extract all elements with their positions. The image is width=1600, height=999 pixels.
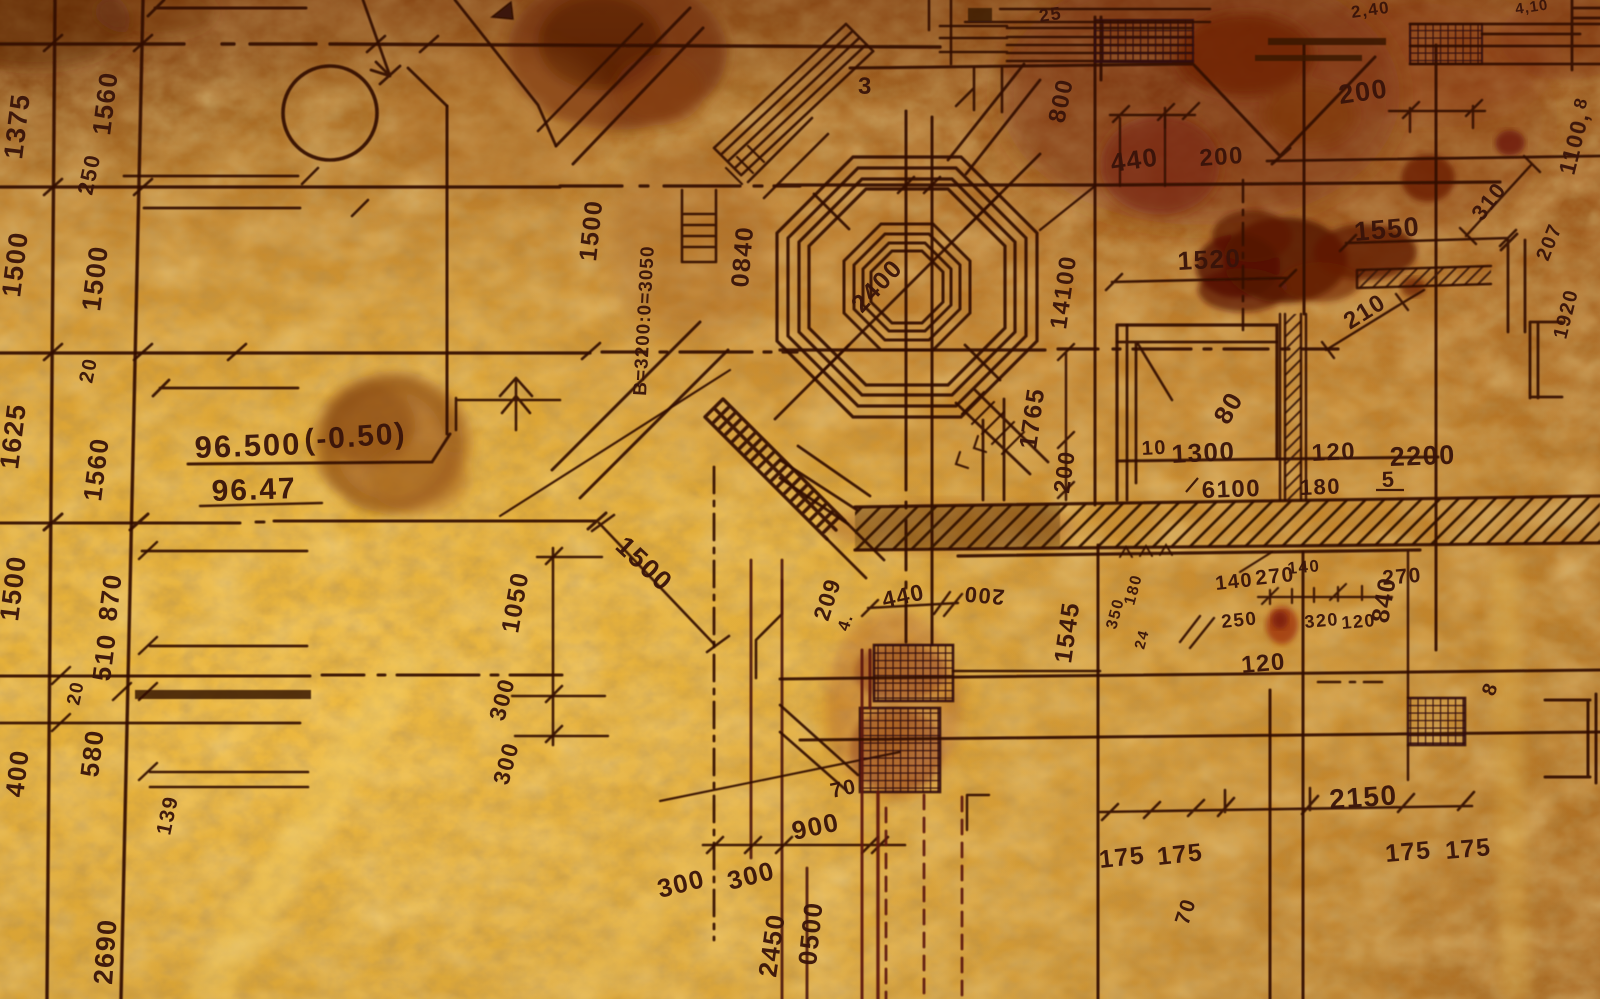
svg-text:200: 200 [962,581,1005,609]
svg-text:1550: 1550 [1353,211,1421,247]
svg-text:120: 120 [1311,438,1357,467]
svg-text:140: 140 [1287,556,1321,578]
svg-text:10: 10 [1141,437,1167,460]
svg-text:175: 175 [1156,838,1205,871]
svg-text:2150: 2150 [1328,779,1398,815]
svg-text:3: 3 [858,73,873,100]
svg-text:175: 175 [1384,836,1432,868]
svg-text:175: 175 [1444,833,1492,865]
svg-text:1300: 1300 [1171,436,1236,469]
svg-text:5: 5 [1381,467,1396,492]
svg-text:870: 870 [92,572,128,623]
svg-text:320: 320 [1304,609,1340,632]
svg-text:175: 175 [1098,841,1147,874]
svg-text:1520: 1520 [1177,243,1242,276]
svg-text:200: 200 [1199,142,1245,172]
svg-text:180: 180 [1299,474,1341,500]
svg-text:25: 25 [1038,3,1064,26]
svg-text:0840: 0840 [726,225,759,289]
svg-text:510: 510 [86,632,122,683]
svg-text:96.47: 96.47 [211,472,297,508]
svg-text:400: 400 [0,748,35,799]
svg-text:2690: 2690 [88,917,123,985]
svg-text:120: 120 [1240,648,1287,679]
svg-text:580: 580 [74,728,110,779]
svg-text:140: 140 [1214,569,1254,595]
svg-text:250: 250 [1220,608,1258,633]
svg-text:2200: 2200 [1389,440,1456,472]
svg-text:6100: 6100 [1201,475,1261,504]
svg-text:96.500: 96.500 [194,426,302,465]
